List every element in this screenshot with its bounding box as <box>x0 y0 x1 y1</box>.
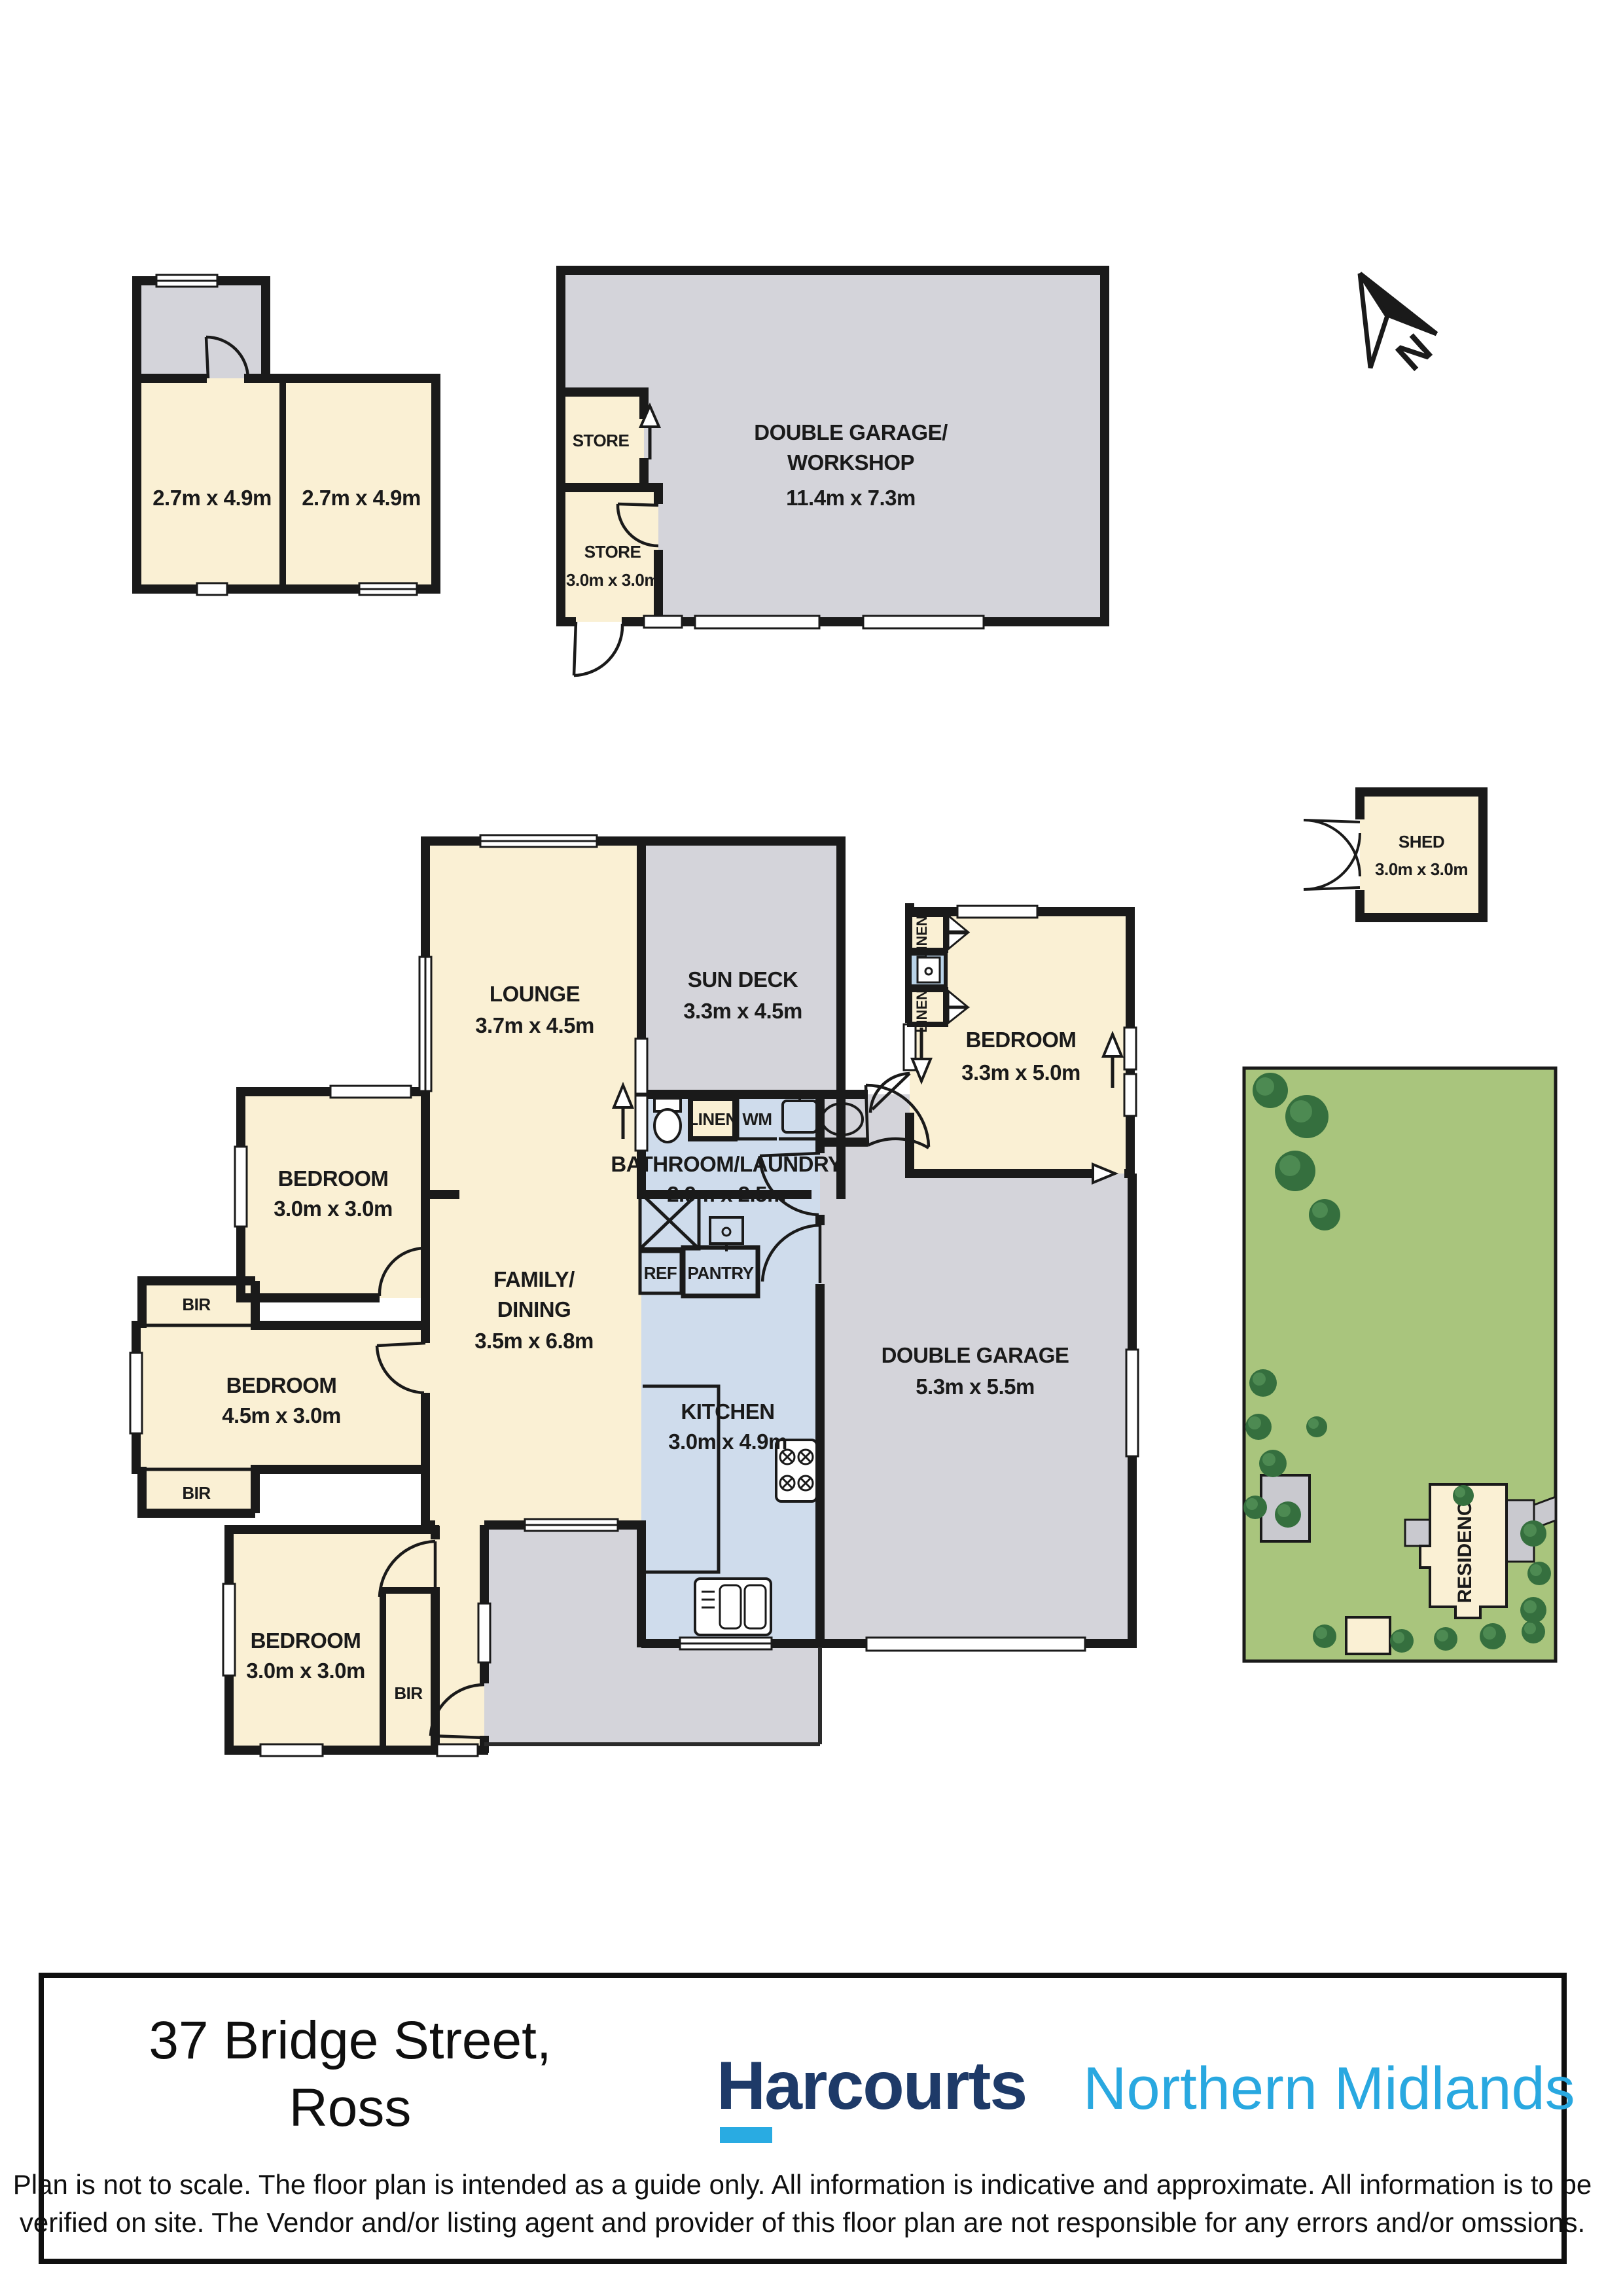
tree <box>1275 1501 1301 1528</box>
kitchen-dim: 3.0m x 4.9m <box>668 1429 787 1454</box>
disclaimer-line-1: Plan is not to scale. The floor plan is … <box>13 2169 1592 2200</box>
brand-underline <box>720 2127 772 2143</box>
workshop-label-1: DOUBLE GARAGE/ <box>754 420 948 444</box>
address-line-1: 37 Bridge Street, <box>149 2011 551 2070</box>
shed-building: SHED 3.0m x 3.0m <box>1304 787 1488 922</box>
brand-wordmark: Harcourts <box>717 2048 1026 2124</box>
store2-exterior-door-arc <box>574 622 622 675</box>
tree <box>1259 1450 1287 1477</box>
floorplan-canvas: 2.7m x 4.9m 2.7m x 4.9m STORE STORE 3.0m… <box>0 0 1623 2296</box>
lounge-label: LOUNGE <box>490 982 580 1006</box>
bedroom-bottomleft-dim: 3.0m x 3.0m <box>246 1659 365 1683</box>
tree <box>1527 1562 1551 1585</box>
workshop-garage-door-2 <box>863 616 984 628</box>
room-family-dining <box>425 1194 641 1525</box>
workshop-garage-door-1 <box>695 616 819 628</box>
garage-door-opening <box>866 1638 1085 1651</box>
garage-dim: 5.3m x 5.5m <box>916 1374 1035 1399</box>
kitchen-sink <box>695 1579 771 1635</box>
outbuilding-room-right <box>283 378 436 589</box>
bathroom-dim: 2.9m x 2.5m <box>667 1182 786 1206</box>
garage-label: DOUBLE GARAGE <box>882 1343 1069 1367</box>
site-plan: RESIDENCE <box>1243 1068 1556 1661</box>
tree <box>1285 1095 1329 1138</box>
linen2-label: LINEN <box>914 990 930 1033</box>
brand-area-name: Northern Midlands <box>1083 2055 1575 2122</box>
store2-dim: 3.0m x 3.0m <box>566 570 659 590</box>
bir3-label: BIR <box>394 1683 423 1703</box>
family-label-2: DINING <box>497 1297 571 1321</box>
footer: 37 Bridge Street, Ross Harcourts Norther… <box>13 1975 1592 2261</box>
outbuilding-room2-dim: 2.7m x 4.9m <box>302 486 421 510</box>
tree <box>1275 1151 1315 1191</box>
tree <box>1480 1623 1506 1649</box>
toilet-bowl <box>654 1109 681 1142</box>
lounge-dim: 3.7m x 4.5m <box>475 1013 594 1037</box>
site-outbuilding-cream <box>1346 1617 1390 1654</box>
tree <box>1390 1629 1414 1653</box>
outbuilding-room-left <box>137 378 283 589</box>
kitchen-label: KITCHEN <box>681 1399 774 1424</box>
room-double-garage <box>820 1174 1132 1643</box>
outbuilding-two-rooms: 2.7m x 4.9m 2.7m x 4.9m <box>132 275 440 595</box>
sundeck-dim: 3.3m x 4.5m <box>683 999 802 1023</box>
tree <box>1243 1496 1267 1519</box>
bedroom-midleft-dim: 4.5m x 3.0m <box>222 1403 341 1427</box>
site-porch-left <box>1405 1520 1430 1546</box>
family-label-1: FAMILY/ <box>493 1267 575 1291</box>
hallway <box>435 1525 484 1750</box>
tree <box>1434 1627 1457 1651</box>
tree <box>1453 1485 1474 1506</box>
bedroom-midleft-label: BEDROOM <box>226 1373 337 1397</box>
shed-double-doors <box>1304 820 1360 889</box>
workshop-label-2: WORKSHOP <box>787 450 914 475</box>
shed-dim: 3.0m x 3.0m <box>1375 859 1468 879</box>
bathroom-linen-label: LINEN <box>688 1109 738 1129</box>
bir2-label: BIR <box>182 1483 211 1503</box>
wm-label: WM <box>742 1109 772 1129</box>
tree <box>1253 1073 1288 1108</box>
tree <box>1520 1520 1546 1547</box>
tree <box>1309 1199 1340 1230</box>
floorplan-page: 2.7m x 4.9m 2.7m x 4.9m STORE STORE 3.0m… <box>0 0 1623 2296</box>
disclaimer-line-2: verified on site. The Vendor and/or list… <box>20 2207 1585 2238</box>
tree <box>1306 1416 1327 1437</box>
family-dim: 3.5m x 6.8m <box>474 1329 594 1353</box>
outbuilding-room1-dim: 2.7m x 4.9m <box>152 486 272 510</box>
ref-label: REF <box>644 1263 677 1283</box>
shed-label: SHED <box>1399 832 1444 852</box>
tree <box>1522 1620 1545 1643</box>
linen1-label: LINEN <box>914 916 930 959</box>
tree <box>1245 1414 1272 1440</box>
bir1-label: BIR <box>182 1295 211 1314</box>
store1-label: STORE <box>573 431 630 450</box>
bedroom-topleft-dim: 3.0m x 3.0m <box>274 1196 393 1221</box>
bedroom-topleft-label: BEDROOM <box>278 1166 389 1191</box>
room-bedroom-topleft <box>241 1092 425 1298</box>
tree <box>1313 1624 1336 1648</box>
workshop-building: STORE STORE 3.0m x 3.0m DOUBLE GARAGE/ W… <box>556 266 1109 675</box>
pantry-label: PANTRY <box>688 1263 754 1283</box>
closet-bir3 <box>383 1590 435 1750</box>
address-line-2: Ross <box>289 2078 412 2138</box>
bathroom-label: BATHROOM/LAUNDRY <box>611 1152 842 1176</box>
bedroom-right-label: BEDROOM <box>966 1028 1077 1052</box>
vanity-basin <box>918 958 940 982</box>
shed-floor <box>1360 792 1483 918</box>
north-arrow: N <box>1360 274 1441 380</box>
bedroom-right-dim: 3.3m x 5.0m <box>961 1060 1080 1085</box>
workshop-dim: 11.4m x 7.3m <box>786 486 916 510</box>
store2-window <box>644 616 682 628</box>
tree <box>1249 1369 1277 1397</box>
bedroom-bottomleft-label: BEDROOM <box>251 1628 361 1653</box>
tree <box>1520 1597 1546 1623</box>
room-bedroom-midleft <box>136 1325 425 1469</box>
sundeck-label: SUN DECK <box>688 967 798 992</box>
store2-label: STORE <box>584 542 641 562</box>
